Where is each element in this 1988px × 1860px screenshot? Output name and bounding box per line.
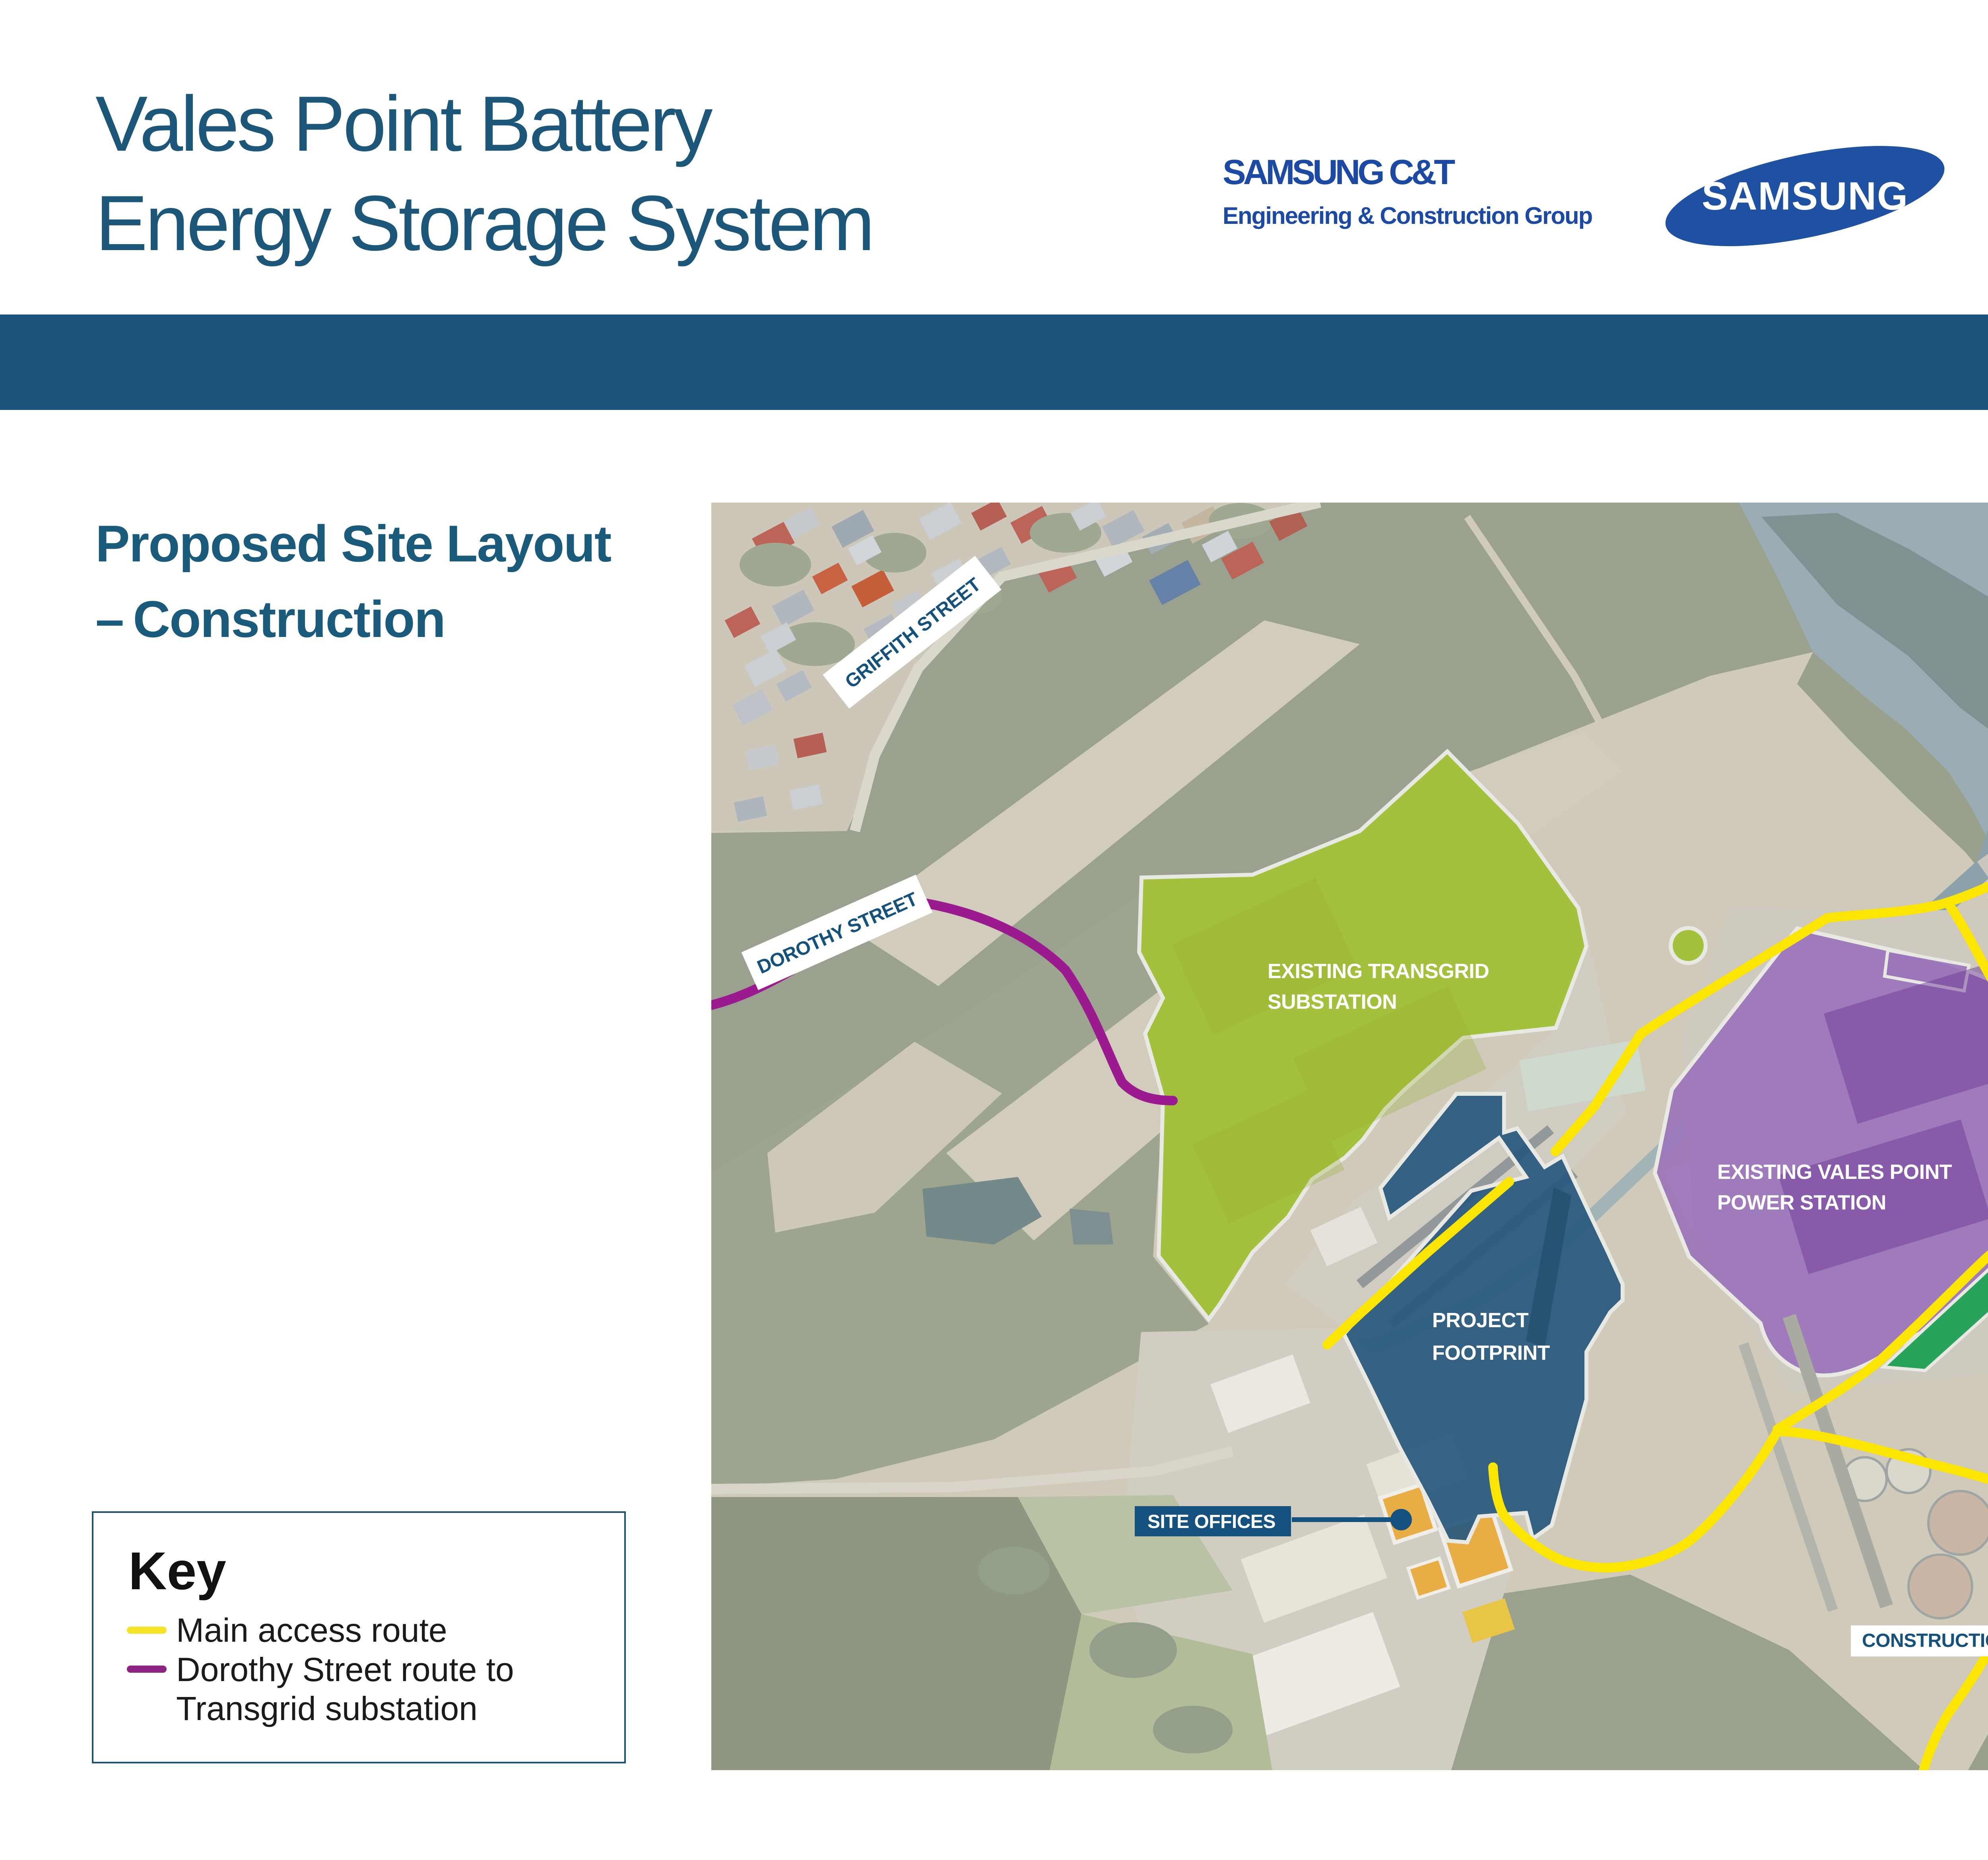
svg-text:POWER STATION: POWER STATION xyxy=(1717,1191,1886,1214)
svg-text:CONSTRUCTION ROAD: CONSTRUCTION ROAD xyxy=(1862,1630,1988,1651)
svg-text:SAMSUNG: SAMSUNG xyxy=(1702,174,1908,218)
svg-text:EXISTING TRANSGRID: EXISTING TRANSGRID xyxy=(1268,960,1489,983)
svg-text:SUBSTATION: SUBSTATION xyxy=(1268,990,1397,1013)
svg-text:EXISTING VALES POINT: EXISTING VALES POINT xyxy=(1717,1161,1952,1184)
svg-text:SITE OFFICES: SITE OFFICES xyxy=(1147,1511,1276,1532)
svg-text:PROJECT: PROJECT xyxy=(1432,1309,1529,1332)
svg-text:FOOTPRINT: FOOTPRINT xyxy=(1432,1342,1550,1365)
